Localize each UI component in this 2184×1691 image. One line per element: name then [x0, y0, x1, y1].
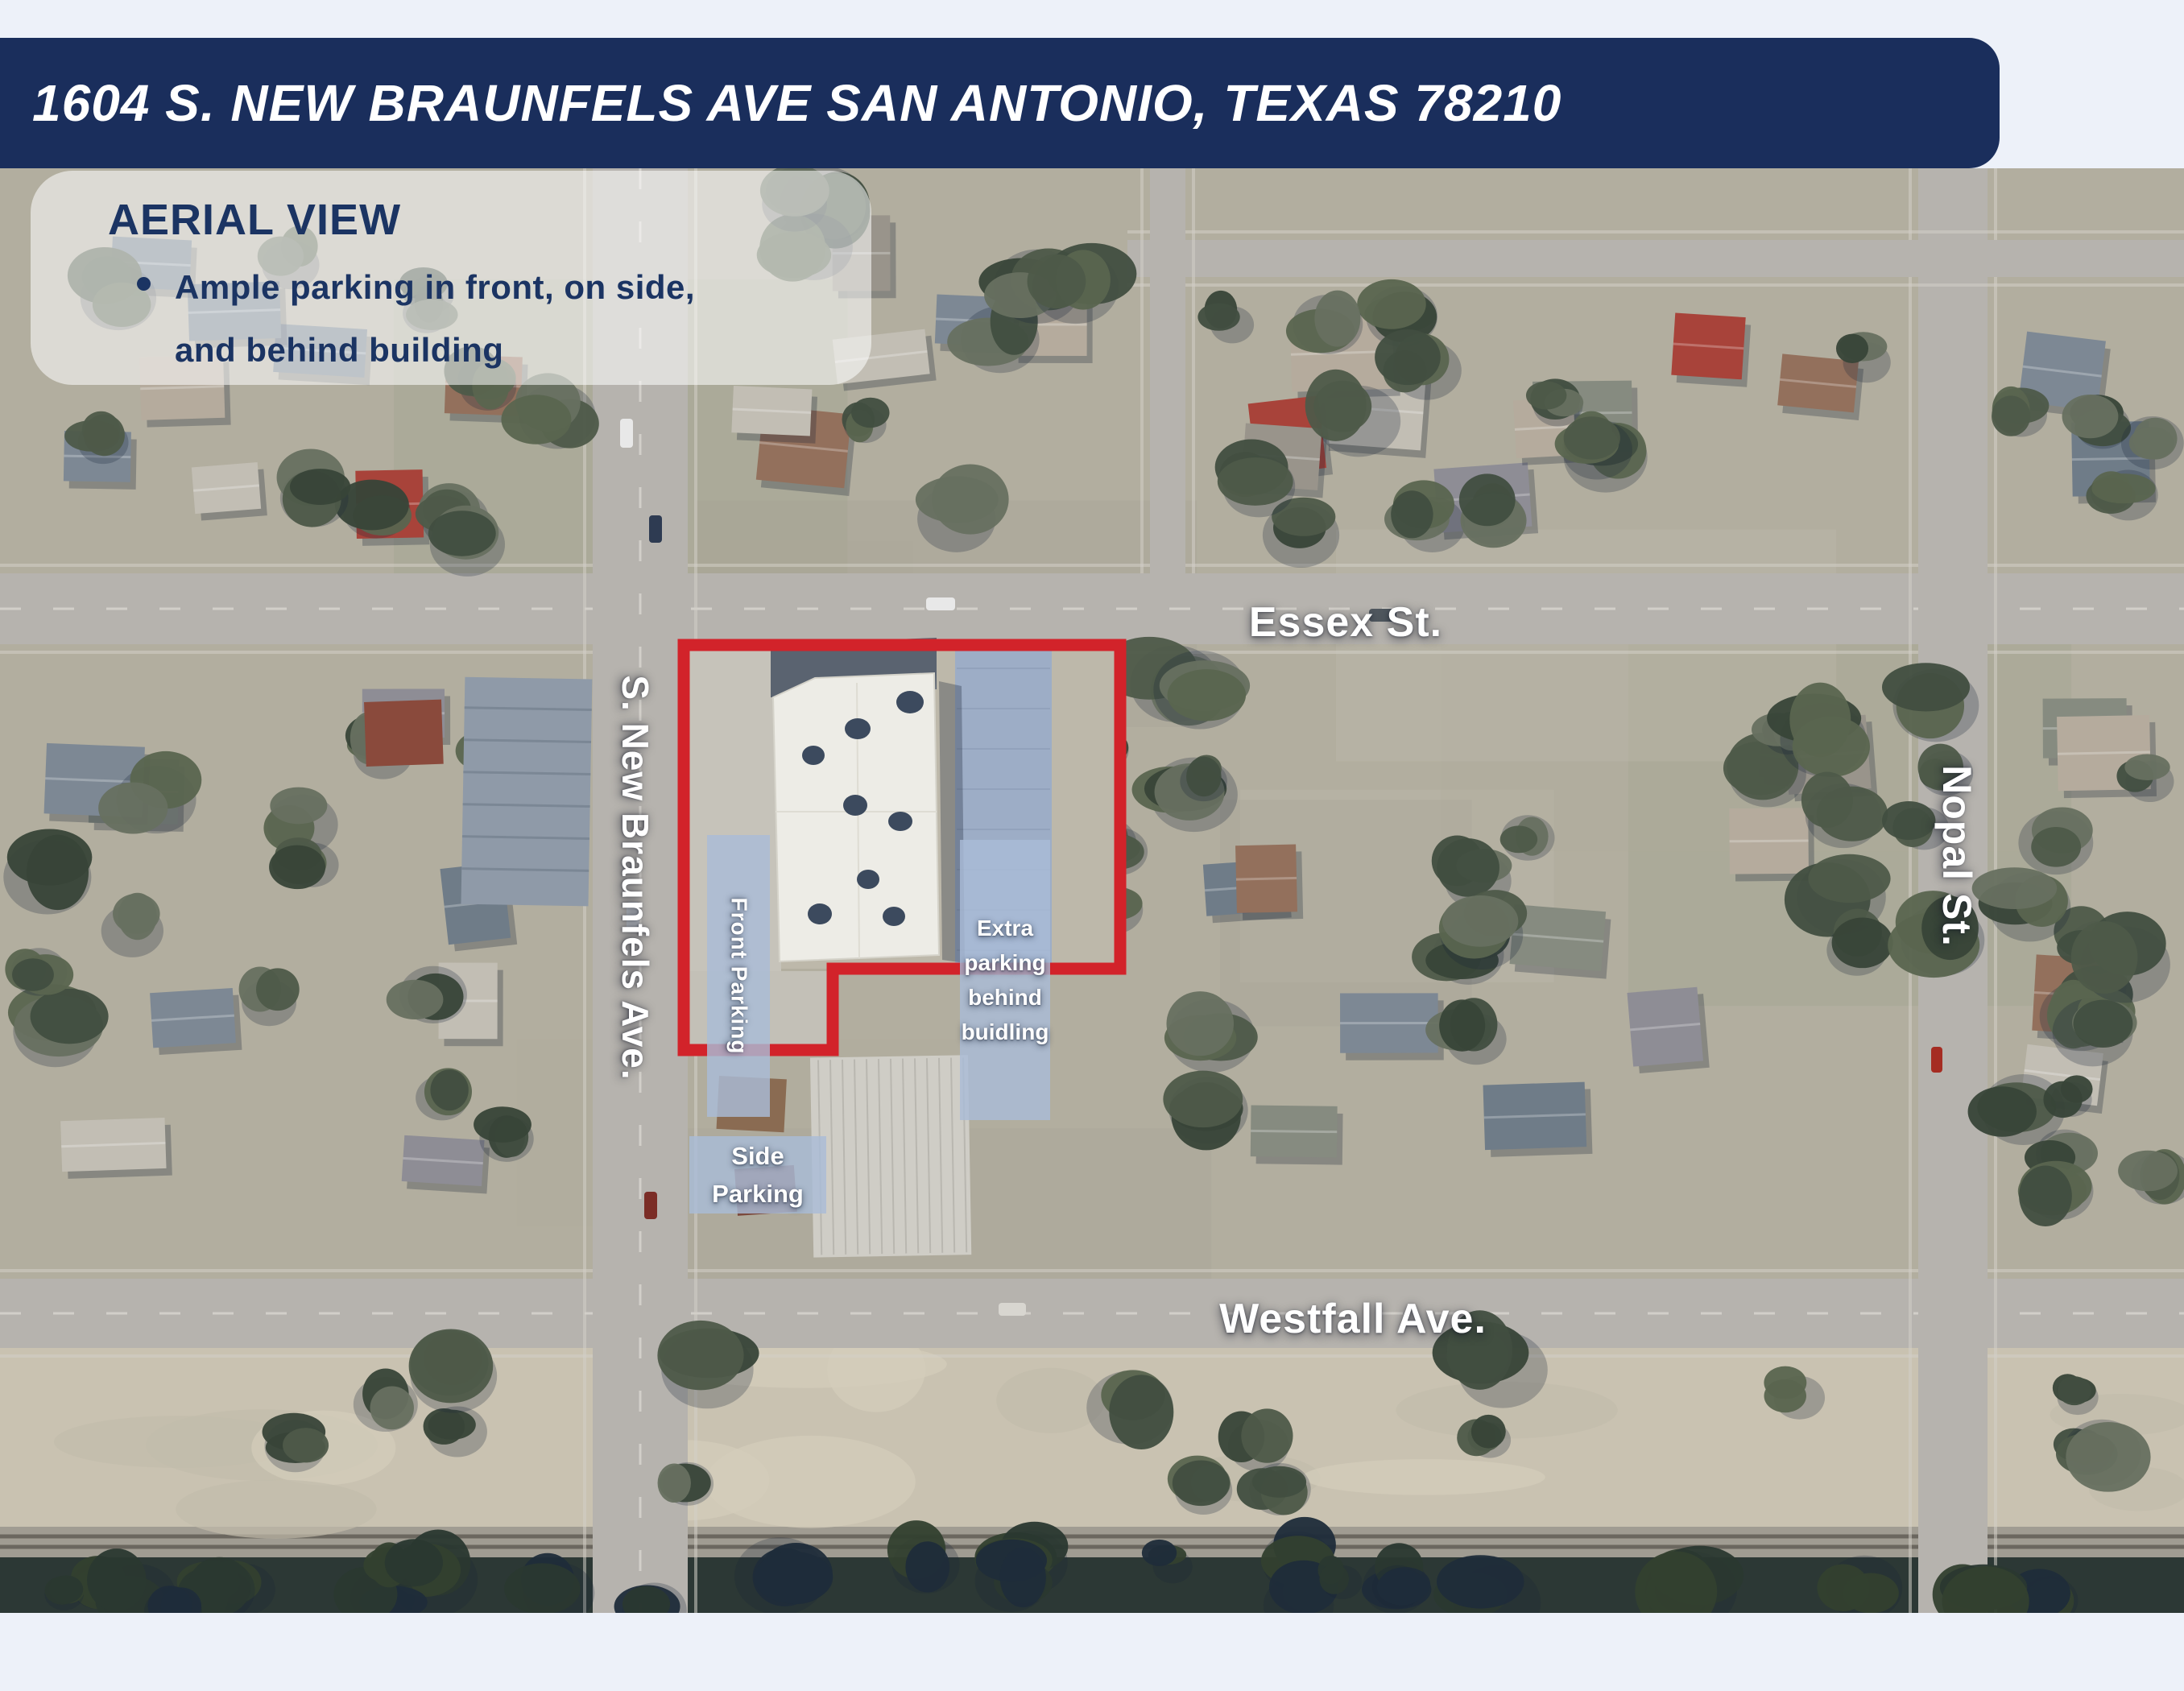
tree-canopy — [1314, 291, 1360, 347]
address-banner: 1604 S. NEW BRAUNFELS AVE SAN ANTONIO, T… — [0, 38, 2000, 168]
tree-canopy — [87, 1548, 147, 1611]
tree-canopy — [1313, 381, 1371, 432]
callout-title: AERIAL VIEW — [108, 195, 871, 245]
tree-canopy — [1836, 334, 1868, 363]
street-label-essex: Essex St. — [1249, 598, 1442, 647]
tree-canopy — [385, 1539, 443, 1586]
tree-canopy — [1808, 854, 1890, 903]
tree-canopy — [2091, 473, 2155, 503]
tree-canopy — [1168, 669, 1247, 721]
tree-canopy — [2118, 1151, 2178, 1192]
tree-canopy — [1459, 473, 1516, 526]
roof-ridge — [1730, 841, 1809, 841]
tree-canopy — [1992, 395, 2030, 436]
callout-bullet-text: Ample parking in front, on side, and beh… — [175, 256, 695, 381]
tree-canopy — [1357, 279, 1426, 329]
tree-canopy — [269, 845, 325, 890]
road — [1150, 168, 1185, 573]
side-parking-overlay: Side Parking — [689, 1136, 826, 1213]
extra-parking-label-line: parking — [964, 945, 1045, 980]
tree-canopy — [501, 395, 571, 444]
tree-canopy — [1375, 329, 1441, 385]
tree-canopy — [1471, 1415, 1506, 1449]
tree-canopy — [2019, 1165, 2072, 1226]
callout-bullet: Ample parking in front, on side, and beh… — [137, 256, 871, 381]
tree-canopy — [428, 511, 496, 556]
tree-canopy — [1972, 867, 2058, 909]
dirt-patch — [176, 1480, 376, 1539]
tree-canopy — [283, 1428, 329, 1462]
tree-canopy — [1173, 1461, 1230, 1507]
car — [926, 597, 955, 610]
tree-canopy — [2073, 1000, 2132, 1048]
aerial-photo: Front Parking Extra parking behind buidl… — [0, 168, 2184, 1613]
tree-canopy — [424, 1333, 482, 1385]
tree-canopy — [98, 783, 168, 834]
tree-canopy — [1882, 801, 1935, 840]
aerial-map-graphic — [0, 168, 2184, 1613]
tree-canopy — [474, 1106, 532, 1143]
tree-canopy — [1166, 991, 1234, 1056]
tree-canopy — [1442, 895, 1518, 947]
car — [999, 1303, 1026, 1316]
street-label-westfall: Westfall Ave. — [1219, 1295, 1487, 1343]
front-parking-label: Front Parking — [726, 897, 751, 1054]
extra-parking-overlay: Extra parking behind buidling — [960, 840, 1050, 1120]
industrial-building — [461, 677, 592, 907]
page: { "page_background": "#EDF1F9", "banner"… — [0, 0, 2184, 1691]
tree-canopy — [1564, 416, 1620, 459]
tree-canopy — [1968, 1086, 2037, 1136]
tree-canopy — [1391, 490, 1433, 538]
tree-canopy — [2129, 427, 2174, 459]
house-roof — [364, 700, 444, 767]
tree-canopy — [370, 1386, 414, 1429]
tree-canopy — [290, 469, 350, 505]
tree-canopy — [755, 1552, 833, 1603]
tree-canopy — [1764, 1366, 1806, 1400]
extra-parking-label-line: Extra — [977, 911, 1033, 945]
tree-canopy — [1197, 303, 1239, 330]
tree-canopy — [1252, 1466, 1306, 1498]
tree-canopy — [1793, 717, 1870, 777]
tree-canopy — [31, 989, 109, 1044]
tree-canopy — [504, 1563, 581, 1613]
tree-canopy — [424, 1408, 465, 1445]
road — [1127, 240, 2184, 277]
tree-canopy — [658, 1463, 691, 1503]
tree-canopy — [113, 894, 160, 934]
tree-canopy — [1439, 999, 1485, 1051]
tree-canopy — [2124, 755, 2170, 780]
tree-canopy — [1163, 1071, 1243, 1127]
tree-canopy — [1028, 254, 1086, 308]
tree-canopy — [2031, 827, 2081, 867]
tree-canopy — [1437, 838, 1499, 897]
aerial-view-callout: AERIAL VIEW Ample parking in front, on s… — [31, 171, 871, 385]
bullet-icon — [137, 277, 151, 291]
tree-canopy — [2062, 395, 2119, 438]
property-address: 1604 S. NEW BRAUNFELS AVE SAN ANTONIO, T… — [32, 73, 1561, 133]
tree-canopy — [2071, 921, 2138, 994]
tree-canopy — [1000, 1548, 1046, 1607]
tree-canopy — [12, 958, 54, 991]
roof-ridge — [1236, 878, 1297, 879]
tree-canopy — [1109, 1375, 1173, 1449]
tree-canopy — [430, 1069, 468, 1110]
tree-canopy — [1241, 1408, 1293, 1462]
tree-canopy — [1437, 1555, 1524, 1608]
dirt-patch — [1303, 1459, 1545, 1495]
tree-canopy — [905, 1541, 949, 1592]
tree-canopy — [1500, 825, 1537, 853]
tree-canopy — [387, 980, 444, 1019]
car — [1931, 1047, 1942, 1073]
tree-canopy — [1142, 1540, 1177, 1566]
tree-canopy — [1319, 1564, 1349, 1594]
tree-canopy — [1218, 457, 1293, 506]
tree-canopy — [1186, 757, 1222, 796]
side-parking-label-line: Parking — [712, 1175, 804, 1213]
tree-canopy — [256, 968, 300, 1011]
side-parking-label-line: Side — [731, 1137, 784, 1175]
street-label-nopal: Nopal St. — [1934, 765, 1980, 947]
tree-canopy — [1882, 663, 1970, 711]
tree-canopy — [44, 1577, 80, 1605]
tree-canopy — [2058, 1376, 2091, 1405]
extra-parking-label-line: behind — [968, 980, 1042, 1015]
car — [620, 419, 633, 448]
extra-parking-label-line: buidling — [962, 1015, 1049, 1049]
tree-canopy — [2061, 1075, 2093, 1102]
tree-canopy — [657, 1321, 743, 1391]
tree-canopy — [64, 420, 120, 452]
roof-ridge — [1251, 1131, 1337, 1131]
tree-canopy — [2066, 1422, 2150, 1492]
tree-canopy — [1526, 382, 1566, 410]
tree-canopy — [932, 465, 1009, 535]
tree-canopy — [1832, 918, 1893, 969]
building-roof — [773, 673, 939, 961]
tree-canopy — [851, 398, 889, 428]
front-parking-overlay: Front Parking — [707, 835, 770, 1117]
tree-canopy — [7, 829, 93, 886]
street-label-new-braunfels: S. New Braunfels Ave. — [614, 675, 657, 1080]
tree-canopy — [1377, 1569, 1426, 1606]
tree-canopy — [1843, 1573, 1898, 1613]
tree-canopy — [1817, 787, 1888, 841]
car — [644, 1192, 657, 1219]
car — [649, 515, 662, 543]
tree-canopy — [270, 788, 327, 825]
warehouse-building — [810, 1055, 971, 1257]
